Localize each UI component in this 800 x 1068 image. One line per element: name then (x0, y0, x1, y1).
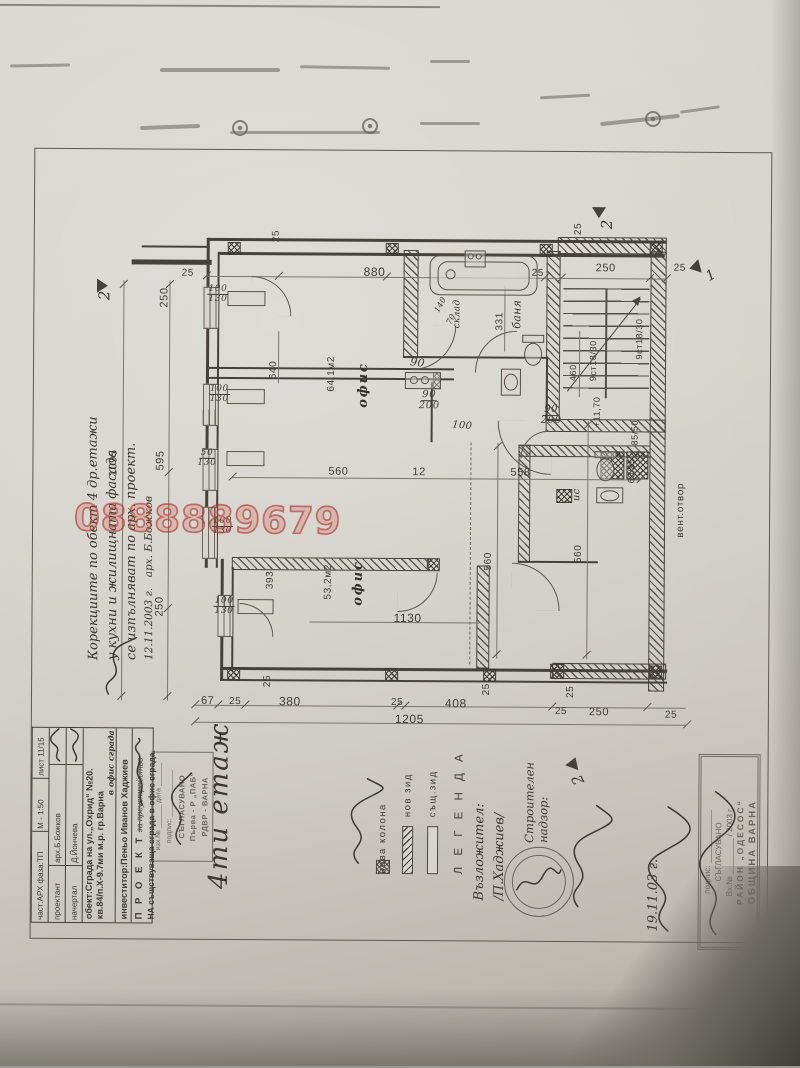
legend-title: Л Е Г Е Н Д А (445, 724, 473, 874)
designer-signature-cell (50, 728, 66, 764)
client-note: Възложител: /П.Хаджиев/ (470, 740, 510, 900)
dim-560-v2: 560 (574, 545, 584, 564)
scan-artifact (160, 68, 280, 72)
bottom-right-post (550, 664, 564, 679)
dim-25-left-top: 25 (182, 269, 194, 279)
title-block-row-part: част:АРХ фаза:ТП М - 1:50 лист 11/15 (32, 728, 50, 922)
drafter-name: Д.Йончева (66, 764, 83, 865)
radiator (226, 451, 264, 466)
window2-size: 100130 (209, 385, 230, 404)
room-label-storage: склад (453, 300, 462, 329)
dim-250-stair: 250 (596, 263, 616, 274)
dim-line-560-b (586, 421, 589, 659)
kitchenette-burner-1 (410, 376, 418, 384)
dim-1130: 1130 (393, 612, 421, 624)
dim-line-mid (232, 477, 640, 481)
frac-bottom: 200 (541, 416, 562, 426)
adjacent-building-edge (132, 259, 212, 264)
dim-595: 595 (155, 450, 166, 470)
section-1-right: 1 (704, 267, 719, 284)
dim-25-b6: 25 (555, 707, 567, 717)
door-arc-hall (475, 330, 517, 372)
shaft-box-3 (556, 489, 572, 503)
room-label-office-1: офис (357, 362, 370, 408)
dim-25-bath: 25 (532, 269, 544, 279)
radiator (227, 389, 265, 404)
dim-25-b3: 25 (391, 698, 403, 708)
window1-size: 100130 (207, 285, 228, 304)
dim-560-v1: 560 (484, 552, 494, 571)
right-wall-new-hatch (648, 252, 667, 692)
handwritten-note-left: Корекциите по обект 4 др.етажи у кухни и… (84, 330, 157, 660)
signature-designer (50, 727, 64, 763)
room-label-bath: баня (511, 300, 522, 329)
column (540, 244, 553, 257)
section-mark-right (688, 259, 702, 275)
section-mark-bottom (565, 755, 582, 770)
title-block-object: обект:Сграда на ул.„Охрид“ №20. кв.84/п.… (83, 728, 117, 922)
bath-cabinet (465, 250, 486, 267)
shaft1-size: 85/50 (631, 420, 640, 446)
wc-toilet-tank (594, 451, 616, 458)
designer-name: арх.Б.Божков (49, 764, 66, 865)
frac-bottom: 130 (214, 607, 233, 616)
frac-bottom: 130 (208, 295, 227, 304)
dim-140: 140 (433, 296, 448, 314)
signature-drafter (67, 727, 81, 763)
vent-label: вент.отвор (676, 483, 686, 538)
level-mark: +11,70 (593, 396, 602, 427)
frac-bottom: 130 (197, 459, 216, 468)
stair-note-2: 9ст18/30 (589, 340, 598, 381)
shaft2-size: 60/85 (627, 458, 636, 484)
dim-880: 880 (364, 266, 386, 278)
dim-408: 408 (445, 697, 467, 709)
punch-hole-mark (645, 111, 661, 127)
section-2-left: 2 (97, 290, 112, 300)
office2-east-wall-new (476, 565, 490, 668)
note-line: Корекциите по обект 4 др.етажи (84, 330, 104, 660)
column (483, 669, 496, 682)
column (386, 243, 399, 256)
scanned-floor-plan-photo: { "watermark": {"text": "0888889679", "c… (0, 0, 800, 1066)
door-arc-room-east (512, 563, 560, 611)
legend-item-new-wall: нов зид (395, 724, 421, 874)
frac-bottom: 130 (210, 395, 229, 404)
dim-558: 558 (510, 468, 530, 479)
legend-label: нов зид (402, 773, 413, 817)
column (649, 666, 662, 679)
column (227, 667, 240, 680)
room-label-office-2: офис (352, 560, 365, 606)
dim-25-b4: 25 (482, 683, 492, 695)
new-wall-swatch-icon (402, 826, 413, 874)
section-dash-line (469, 442, 472, 664)
floor-label: 4ти етаж (204, 721, 235, 888)
dim-25-b7: 25 (665, 711, 677, 721)
dim-460: 460 (569, 364, 578, 381)
dim-25-b2: 25 (229, 697, 241, 707)
note-line: се изпълняват по арх. проект. (122, 330, 142, 660)
wc-toilet-bowl (596, 458, 614, 481)
part-cell: част:АРХ фаза:ТП (32, 831, 49, 922)
photo-paper-background: 2588025025100130100130501301001301001302… (0, 0, 800, 1066)
punch-hole-mark (232, 120, 248, 136)
stair-west-wall-new (546, 251, 561, 421)
designer-label: проектант (49, 865, 65, 922)
dim-25-b5: 25 (566, 686, 576, 698)
corridor-washbasin-bowl (504, 374, 518, 391)
column (228, 242, 241, 255)
sheet-cell: лист 11/15 (32, 728, 48, 778)
wc-sink-bowl (600, 490, 619, 501)
frac-bottom: 200 (419, 401, 440, 411)
dim-12: 12 (412, 467, 426, 478)
strike-scribble (134, 736, 146, 806)
window3-size: 50130 (197, 449, 216, 468)
object-hand-note: в офис сграда (105, 730, 115, 795)
section-mark-top (592, 207, 606, 218)
scale-cell: М - 1:50 (32, 778, 48, 831)
client-name: /П.Хаджиев/ (489, 741, 509, 901)
dim-25-b1: 25 (263, 675, 273, 687)
cabinet-burner-2 (476, 253, 482, 259)
dim-640: 640 (269, 361, 279, 380)
area-office-2: 53,2м2 (324, 564, 334, 600)
title-block-investor: инвеститор:Пеньо Иванов Хаджиев (116, 728, 133, 922)
drafter-label: начертал (66, 865, 82, 922)
bathtub-drain (446, 269, 456, 279)
title-block-row-designer: проектант арх.Б.Божков (49, 728, 67, 922)
dim-100-door: 100 (452, 420, 473, 432)
dim-25-top: 25 (272, 230, 282, 242)
office2-door-post (428, 558, 440, 571)
stamp-line: ОБЩИНА ВАРНА (746, 757, 760, 947)
dim-line-left-inner (167, 281, 171, 701)
dim-250-bottom: 250 (589, 707, 609, 718)
title-block: част:АРХ фаза:ТП М - 1:50 лист 11/15 про… (31, 727, 154, 924)
new-column-swatch-icon (375, 860, 389, 874)
scan-artifact (420, 122, 480, 125)
dim-line-bottom-1 (194, 705, 686, 709)
dim-25-right: 25 (674, 264, 686, 274)
column (650, 242, 663, 255)
window5-size: 100130 (213, 597, 234, 616)
dim-250-left-top: 250 (159, 287, 170, 307)
existing-wall-swatch-icon (427, 826, 438, 874)
toilet-bath-bowl (524, 343, 542, 366)
project-word: П Р О Е К Т (134, 835, 146, 920)
note-line: у кухни и жилищната фасада (103, 330, 123, 660)
stair-note-1: 9ст18/30 (635, 318, 644, 359)
phone-watermark: 0888889679 (74, 496, 342, 543)
section-2-top: 2 (600, 219, 615, 229)
wc-note: ис (572, 488, 582, 501)
scan-artifact (430, 60, 470, 63)
supervisor-note: Строителен надзор: (522, 723, 551, 843)
kitchenette-burner-2 (421, 376, 429, 384)
door1-size: 90200 (419, 390, 440, 411)
title-block-row-drafter: начертал Д.Йончева (66, 728, 84, 922)
column (385, 668, 398, 681)
toilet-bath-tank (522, 335, 544, 343)
door-90-note: 90 (409, 356, 425, 369)
stair-landing-south-new (546, 419, 666, 433)
dim-67: 67 (201, 696, 215, 707)
drafter-signature-cell (67, 728, 83, 764)
dim-25-top-right: 25 (574, 223, 584, 235)
area-office-1: 64,1м2 (327, 356, 337, 392)
legend-item-existing-wall: същ.зид (420, 724, 446, 874)
note-date: 12.11.2003 г. (143, 588, 155, 660)
dim-393: 393 (266, 571, 276, 590)
door-arc-balcony (251, 276, 291, 316)
door2-size: 90200 (541, 405, 562, 426)
legend-label: същ.зид (427, 770, 438, 817)
bottom-wall-inner (220, 679, 667, 684)
dim-380: 380 (279, 695, 301, 707)
punch-hole-mark (362, 118, 378, 134)
section-2-bottom: 2 (569, 772, 587, 787)
client-label: Възложител: (470, 740, 490, 900)
scan-artifact (230, 131, 380, 134)
dim-331: 331 (495, 312, 505, 331)
dim-560-mid: 560 (328, 467, 348, 478)
door-arc-office2 (398, 572, 438, 612)
dim-line-560-a (496, 443, 499, 659)
adjacent-building-line (142, 245, 210, 247)
cabinet-burner-1 (468, 253, 474, 259)
